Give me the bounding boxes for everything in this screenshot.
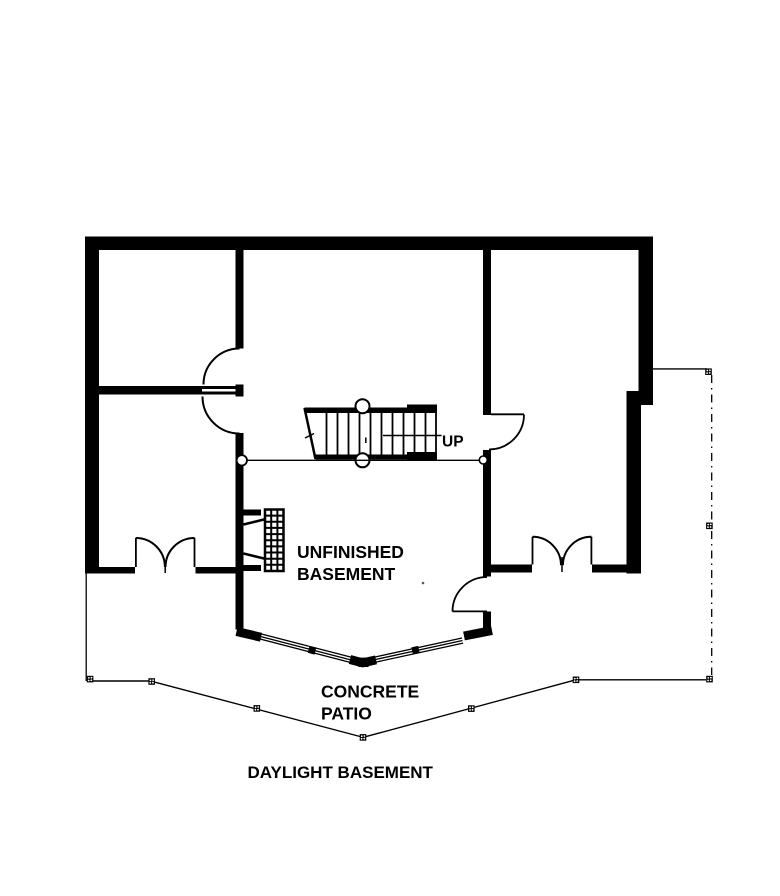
svg-text:BASEMENT: BASEMENT: [297, 564, 396, 584]
svg-text:UP: UP: [442, 433, 464, 450]
svg-text:CONCRETE: CONCRETE: [321, 682, 419, 702]
svg-text:DAYLIGHT BASEMENT: DAYLIGHT BASEMENT: [248, 763, 434, 782]
svg-text:UNFINISHED: UNFINISHED: [297, 542, 404, 562]
svg-text:PATIO: PATIO: [321, 704, 372, 724]
